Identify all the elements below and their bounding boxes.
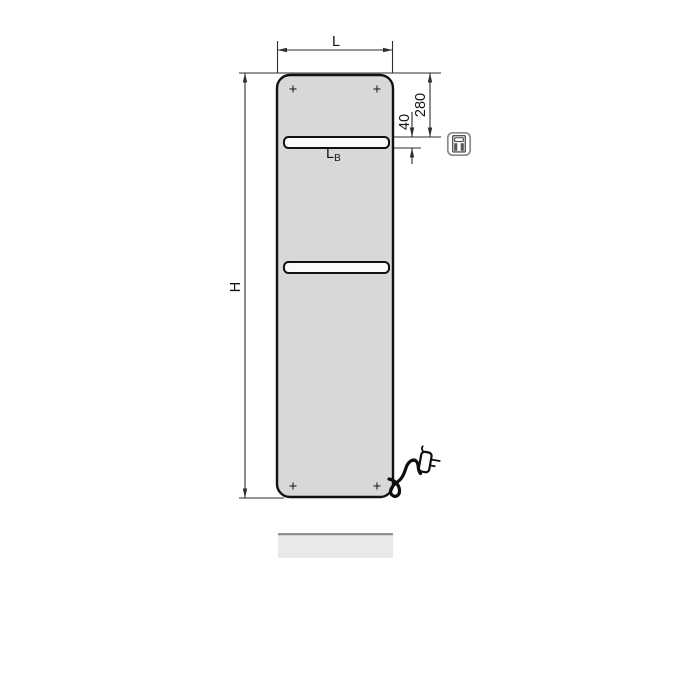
floor-shadow bbox=[278, 533, 393, 558]
slot-40-label: 40 bbox=[397, 114, 413, 130]
diagram-canvas: L H 280 40 LB bbox=[0, 0, 700, 700]
width-label: L bbox=[332, 34, 340, 50]
radiator-dimension-diagram: L H 280 40 LB bbox=[0, 0, 700, 700]
towel-bar-slot-bottom bbox=[284, 262, 389, 273]
electric-control-unit-icon bbox=[448, 133, 470, 155]
towel-bar-slot-top bbox=[284, 137, 389, 148]
offset-280-label: 280 bbox=[413, 93, 429, 117]
power-cable bbox=[389, 446, 442, 496]
height-label: H bbox=[228, 282, 244, 292]
power-plug-icon bbox=[418, 446, 443, 474]
